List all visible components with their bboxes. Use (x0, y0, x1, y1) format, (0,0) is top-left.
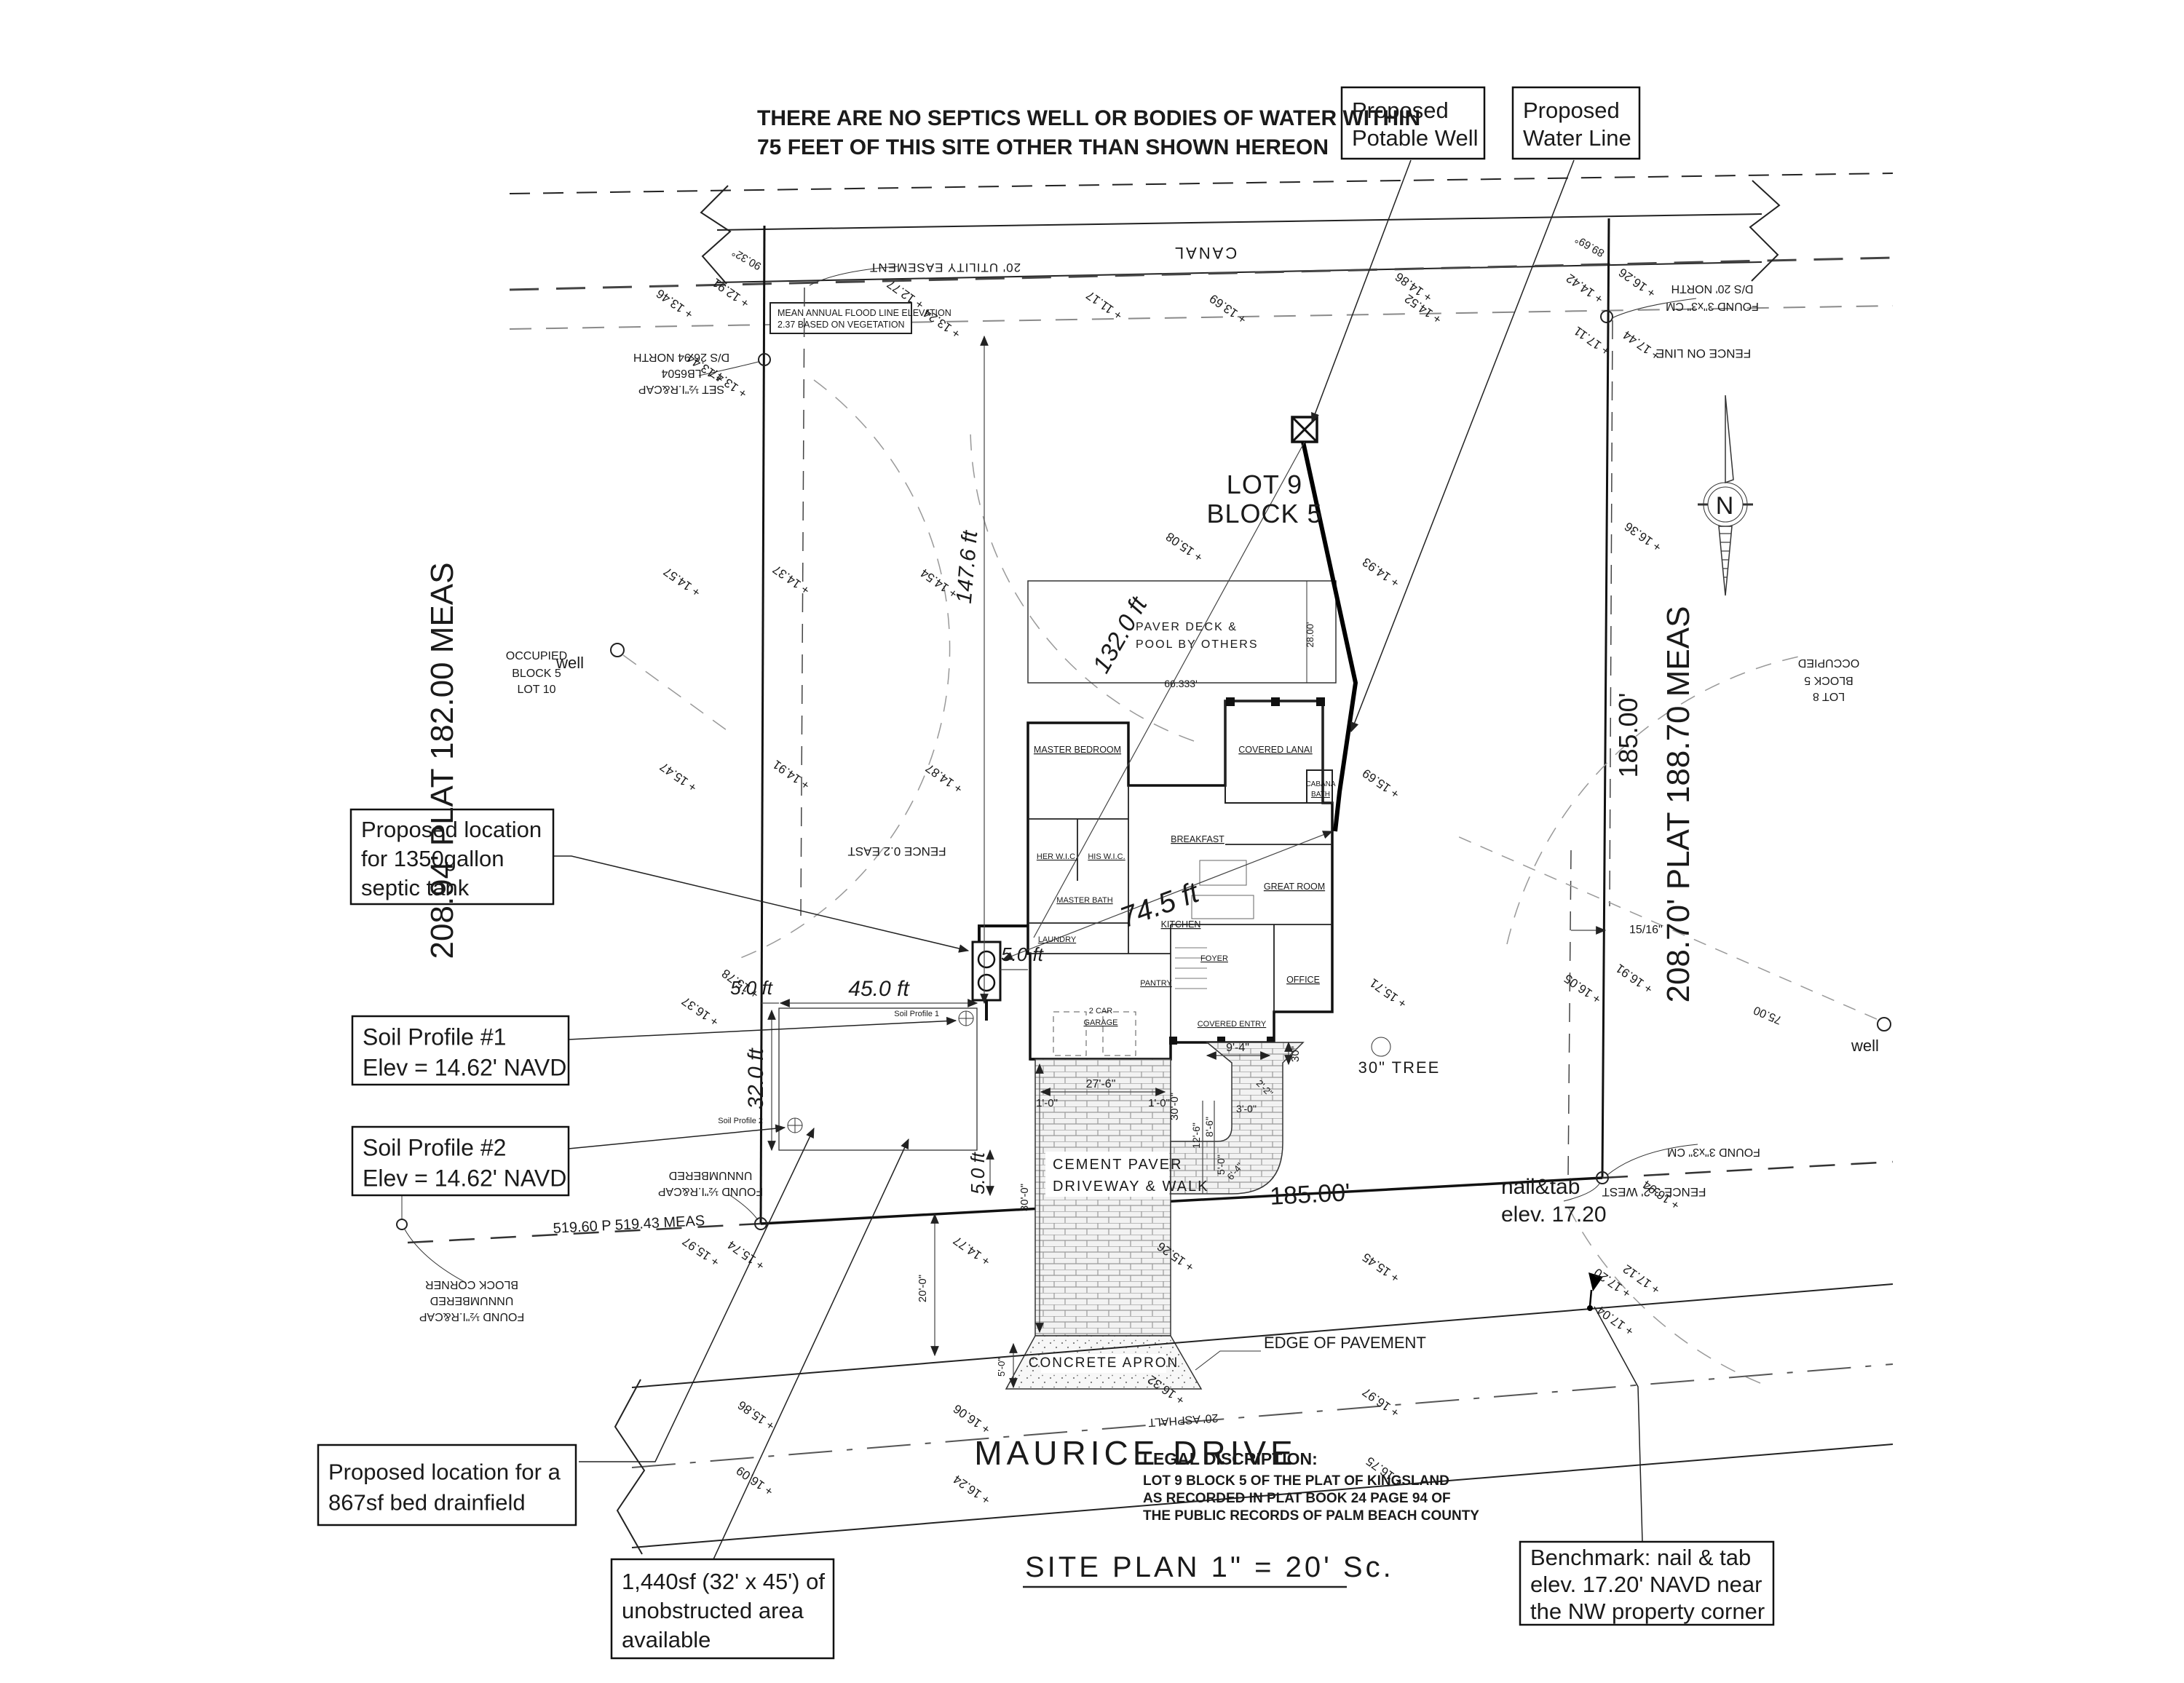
room-laundry: LAUNDRY (1038, 935, 1077, 944)
callout-soil-profile-2-line: Soil Profile #2 (363, 1134, 506, 1160)
found-rod-sw-1: UNNUMBERED (669, 1169, 753, 1181)
leader-unobstructed (713, 1139, 909, 1559)
callout-soil-profile-2-line: Elev = 14.62' NAVD (363, 1165, 566, 1191)
dim-30-0-a: 30'-0" (1018, 1184, 1031, 1211)
drainfield-area (779, 1008, 977, 1150)
edge-of-pavement-leader (1195, 1351, 1261, 1370)
callout-soil-profile-1: Soil Profile #1Elev = 14.62' NAVD (352, 1016, 569, 1085)
canal-label: CANAL (1173, 244, 1237, 262)
callout-bed-drainfield: Proposed location for a867sf bed drainfi… (318, 1445, 576, 1525)
soil-symbol-2-label: Soil Profile 2 (718, 1117, 763, 1125)
canal-break-right (1750, 181, 1779, 281)
occupied-lot10-2: BLOCK 5 (512, 668, 561, 680)
spot-elev: + 15.45 (1360, 1250, 1402, 1285)
leader-benchmark (1594, 1307, 1642, 1542)
room-cabana-2: BATH (1311, 791, 1330, 799)
lot-label-1: LOT 9 (1227, 470, 1302, 499)
spot-elev: + 14.77 (951, 1233, 993, 1268)
driveway-label-1: CEMENT PAVER (1053, 1157, 1182, 1173)
dim-28: 28.00' (1305, 622, 1315, 647)
monument-found-cm-ne (1601, 311, 1613, 322)
found-cm-ne-1: D/S 20' NORTH (1671, 282, 1753, 295)
row-meas: 519.60 P 519.43 MEAS (553, 1213, 705, 1237)
corner-angle-nw: 90.32° (730, 246, 764, 272)
found-ip: 15/16" (1629, 924, 1663, 936)
spot-elev: + 15.08 (1163, 529, 1206, 564)
room-great-room: GREAT ROOM (1264, 882, 1325, 892)
spot-elev: + 14.57 (661, 564, 703, 599)
disclaimer-line-2: 75 FEET OF THIS SITE OTHER THAN SHOWN HE… (757, 135, 1329, 159)
front-boundary-dim: 185.00' (1269, 1179, 1350, 1211)
found-cm-se: FOUND 3"x3" CM (1667, 1146, 1760, 1158)
spot-elev: + 15.86 (735, 1398, 778, 1433)
nail-tab-2: elev. 17.20 (1501, 1203, 1607, 1227)
concrete-apron-label: CONCRETE APRON (1029, 1355, 1179, 1371)
house-floor-plan (1028, 581, 1336, 1059)
found-rod-sw-2: FOUND ½"I.R&CAP (658, 1185, 763, 1197)
room-master-bedroom: MASTER BEDROOM (1034, 745, 1121, 755)
asphalt-label: 20' ASPHALT (1148, 1411, 1219, 1429)
callout-soil-profile-1-line: Soil Profile #1 (363, 1023, 506, 1050)
callout-unobstructed-area-line: available (622, 1627, 711, 1652)
set-rod-line-3: SET ½"I.R&CAP (638, 383, 724, 395)
canal-break-left (701, 186, 730, 284)
found-cm-ne-2: FOUND 3"x3" CM (1666, 300, 1759, 312)
soil-profile-symbol-2 (788, 1118, 802, 1133)
callout-proposed-water-line-line: Water Line (1523, 125, 1631, 151)
arc-right-well-lower (1565, 1201, 1760, 1383)
callout-benchmark-line: elev. 17.20' NAVD near (1530, 1572, 1762, 1597)
room-covered-entry: COVERED ENTRY (1198, 1020, 1267, 1029)
spot-elev: + 14.91 (770, 757, 812, 792)
site-plan-sheet: ProposedPotable WellProposedWater LinePr… (0, 0, 2184, 1683)
dining-table (1200, 860, 1246, 885)
callout-proposed-water-line-line: Proposed (1523, 98, 1620, 123)
corner-angle-ne: 89.69° (1573, 233, 1607, 259)
callout-benchmark-line: the NW property corner (1530, 1599, 1765, 1624)
spot-elev: + 13.46 (654, 286, 696, 321)
leader-water-line (1351, 160, 1574, 732)
spot-elev: + 16.05 (1562, 971, 1604, 1006)
disclaimer-line-1: THERE ARE NO SEPTICS WELL OR BODIES OF W… (757, 106, 1420, 130)
spot-elev: + 16.24 (951, 1472, 993, 1507)
legal-heading: LEGAL DISCRIPTION: (1143, 1449, 1318, 1468)
callout-bed-drainfield-line: 867sf bed drainfield (328, 1489, 526, 1515)
set-rod-line-1: D/S 26.94 NORTH (633, 351, 729, 363)
room-foyer: FOYER (1200, 954, 1228, 963)
edge-of-pavement-label: EDGE OF PAVEMENT (1264, 1334, 1426, 1352)
deck-label-1: PAVER DECK & (1136, 621, 1238, 633)
deck-label-2: POOL BY OTHERS (1136, 638, 1258, 651)
room-his-wic: HIS W.I.C. (1088, 852, 1125, 861)
dim-1-0-a: 1'-0" (1036, 1097, 1058, 1109)
lanai-post (1316, 697, 1325, 706)
well-left-symbol (611, 643, 624, 657)
dim-8-6: 8'-6" (1203, 1117, 1215, 1137)
occupied-lot10-3: LOT 10 (517, 684, 555, 696)
callout-unobstructed-area-line: 1,440sf (32' x 45') of (622, 1569, 825, 1594)
callout-bed-drainfield-line: Proposed location for a (328, 1459, 561, 1484)
legal-line-2: AS RECORDED IN PLAT BOOK 24 PAGE 94 OF (1143, 1491, 1451, 1506)
spot-elev: + 14.93 (1360, 555, 1402, 590)
block-corner-2: UNNUMBERED (430, 1294, 514, 1307)
callout-layer: ProposedPotable WellProposedWater LinePr… (318, 87, 1773, 1658)
well-right-symbol (1878, 1018, 1891, 1031)
east-boundary-dim-1: 185.00' (1613, 693, 1643, 778)
dim-30-0-b: 30'-0" (1168, 1093, 1181, 1120)
flood-line-note-2: 2.37 BASED ON VEGETATION (778, 320, 905, 330)
occupied-lot8-2: BLOCK 5 (1804, 674, 1853, 686)
nail-tab-1: nail&tab (1501, 1175, 1580, 1199)
room-kitchen: KITCHEN (1161, 919, 1201, 930)
callout-benchmark: Benchmark: nail & tabelev. 17.20' NAVD n… (1520, 1542, 1773, 1625)
spot-elev: + 13.69 (1207, 291, 1249, 326)
dim-1-0-b: 1'-0" (1148, 1097, 1170, 1109)
label-layer: THERE ARE NO SEPTICS WELL OR BODIES OF W… (419, 106, 1879, 1583)
room-master-bath: MASTER BATH (1056, 896, 1112, 905)
spot-elev: + 17.11 (1571, 324, 1613, 359)
room-office: OFFICE (1286, 975, 1320, 985)
spot-elev: + 17.04 (1594, 1303, 1637, 1338)
utility-easement-label: 20' UTILITY EASEMENT (869, 261, 1021, 274)
callout-soil-profile-2: Soil Profile #2Elev = 14.62' NAVD (352, 1127, 569, 1195)
soil-profile-symbol-1 (959, 1011, 973, 1026)
occupied-lot8-1: OCCUPIED (1798, 657, 1859, 669)
spot-elev: + 16.36 (1622, 519, 1664, 554)
lanai-post (1226, 697, 1235, 706)
dim-3-0: 3'-0" (1236, 1103, 1257, 1114)
dim-5-0-apron: 5'-0" (996, 1358, 1007, 1377)
west-boundary-dim: 208.94' PLAT 182.00 MEAS (424, 563, 460, 959)
spot-elev: + 17.44 (1621, 328, 1663, 363)
spot-elev: + 15.97 (680, 1234, 722, 1269)
callout-proposed-water-line: ProposedWater Line (1513, 87, 1639, 159)
dim-12-6: 12'-6" (1190, 1122, 1202, 1149)
garage-bay (1053, 1012, 1086, 1056)
spot-elev: + 16.06 (951, 1401, 993, 1436)
monument-block-corner (397, 1219, 407, 1229)
dim-75-00: 75.00 (1752, 1003, 1784, 1026)
lot-label-2: BLOCK 5 (1206, 499, 1322, 528)
dim-5c: 5.0 ft (967, 1151, 989, 1195)
arc-right-well-upper (1507, 655, 1805, 944)
spot-elev: + 14.37 (770, 562, 812, 597)
tree-label: 30" TREE (1358, 1058, 1441, 1077)
well-right-label: well (1851, 1037, 1879, 1055)
sheet-title: SITE PLAN 1" = 20' Sc. (1025, 1551, 1394, 1583)
fence-line-se (1568, 850, 1571, 1178)
callout-unobstructed-area: 1,440sf (32' x 45') ofunobstructed areaa… (612, 1559, 834, 1658)
block-corner-3: FOUND ½"I.R&CAP (419, 1310, 524, 1323)
entry-post (1169, 1037, 1177, 1045)
spot-elev: + 14.42 (1564, 271, 1606, 306)
occupied-lot8-3: LOT 8 (1813, 690, 1845, 702)
fence-line-west (801, 288, 804, 916)
dim-5-0-w: 5'-0" (1215, 1155, 1227, 1175)
spot-elev: + 16.37 (679, 994, 721, 1029)
spot-elev: + 16.91 (1613, 961, 1655, 996)
tree-symbol (1372, 1037, 1390, 1056)
spot-elev: + 15.47 (657, 759, 700, 794)
arc-proposed-well (970, 431, 1194, 741)
block-corner-1: BLOCK CORNER (425, 1278, 518, 1291)
east-boundary-dim-2: 208.70' PLAT 188.70 MEAS (1661, 606, 1696, 1003)
dim-27-6: 27'-6" (1086, 1078, 1116, 1090)
dim-5b: 5.0 ft (1001, 943, 1045, 965)
spot-elev: + 12.91 (710, 275, 752, 310)
lanai-post (1271, 697, 1280, 706)
room-covered-lanai: COVERED LANAI (1238, 745, 1312, 755)
spot-elev: + 16.26 (1616, 265, 1658, 300)
room-her-wic: HER W.I.C. (1037, 852, 1077, 861)
legal-line-3: THE PUBLIC RECORDS OF PALM BEACH COUNTY (1143, 1508, 1479, 1524)
soil-symbol-1-label: Soil Profile 1 (894, 1010, 939, 1018)
room-cabana-1: CABANA (1305, 780, 1335, 788)
arc-radius-construction (623, 655, 732, 734)
spot-elev: + 15.71 (1367, 975, 1409, 1010)
spot-elev: + 14.87 (923, 761, 965, 796)
leader-potable-well (1312, 160, 1411, 422)
leader-soil-2 (569, 1128, 785, 1149)
driveway-label-2: DRIVEWAY & WALK (1053, 1179, 1208, 1195)
room-garage-1: 2 CAR (1089, 1007, 1112, 1015)
callout-unobstructed-area-line: unobstructed area (622, 1598, 804, 1623)
dim-9-4: 9'-4" (1226, 1042, 1249, 1054)
room-pantry: PANTRY (1140, 979, 1172, 988)
fence-line-east (1610, 320, 1613, 906)
room-breakfast: BREAKFAST (1171, 834, 1224, 844)
spot-elev: + 16.97 (1360, 1385, 1402, 1419)
dim-30in: 30" (1289, 1046, 1302, 1062)
dim-32: 32.0 ft (744, 1048, 768, 1109)
callout-benchmark-line: Benchmark: nail & tab (1530, 1545, 1751, 1570)
spot-elev: + 15.69 (1360, 766, 1402, 801)
dim-45: 45.0 ft (848, 977, 910, 1001)
room-garage-2: GARAGE (1083, 1018, 1117, 1027)
spot-elev: + 16.09 (734, 1463, 776, 1498)
septic-pipe-house (979, 926, 1028, 942)
dim-66: 66.333' (1164, 678, 1198, 689)
dim-20-0: 20'-0" (917, 1275, 929, 1302)
spot-elev: + 15.74 (725, 1237, 767, 1272)
callout-soil-profile-1-line: Elev = 14.62' NAVD (363, 1054, 566, 1080)
dim-132: 132.0 ft (1088, 592, 1153, 678)
north-letter: N (1716, 492, 1736, 520)
fence-on-line-label: FENCE ON LINE (1656, 346, 1751, 360)
site-plan-drawing: ProposedPotable WellProposedWater LinePr… (0, 0, 2184, 1683)
arc-left-well (737, 380, 950, 959)
well-left-label: well (555, 654, 584, 672)
spot-elev: + 11.17 (1083, 288, 1125, 323)
fence-02-east-label: FENCE 0.2 EAST (847, 844, 946, 858)
